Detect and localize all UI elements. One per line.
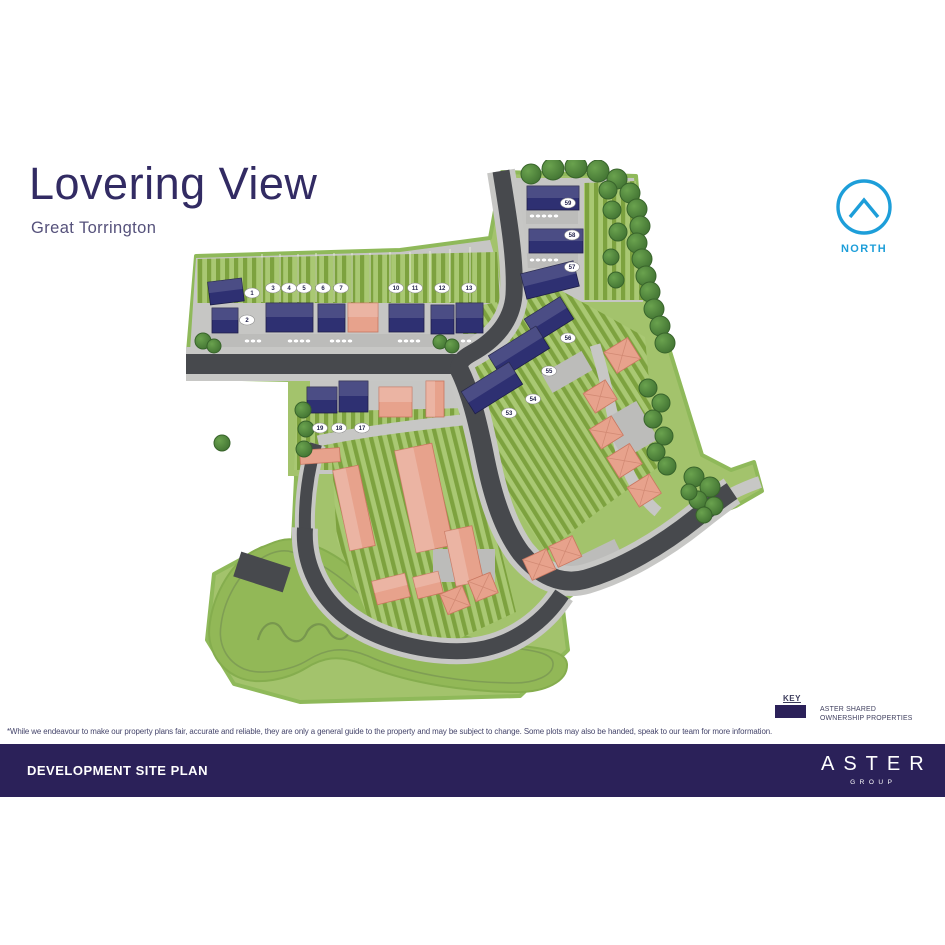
svg-text:13: 13 xyxy=(466,286,473,292)
plot-badge: 59 xyxy=(561,198,576,208)
plot-badge: 17 xyxy=(355,423,370,433)
footer-title: DEVELOPMENT SITE PLAN xyxy=(27,744,208,797)
open-market-house xyxy=(348,303,378,332)
north-label: NORTH xyxy=(828,243,900,255)
map-key: KEY ASTER SHARED OWNERSHIP PROPERTIES xyxy=(775,694,809,718)
plot-badge: 10 xyxy=(389,283,404,293)
key-heading: KEY xyxy=(775,694,809,703)
svg-text:18: 18 xyxy=(336,426,343,432)
plot-badge: 56 xyxy=(561,333,576,343)
svg-text:53: 53 xyxy=(506,411,513,417)
key-label-line1: ASTER SHARED xyxy=(820,706,913,715)
svg-text:19: 19 xyxy=(317,426,324,432)
brand-subtitle: GROUP xyxy=(821,779,926,786)
shared-ownership-house xyxy=(208,278,245,305)
key-label: ASTER SHARED OWNERSHIP PROPERTIES xyxy=(820,706,913,723)
disclaimer-text: *While we endeavour to make our property… xyxy=(7,727,937,736)
plot-badge: 4 xyxy=(282,283,297,293)
svg-text:55: 55 xyxy=(546,369,553,375)
shared-ownership-house xyxy=(339,381,368,412)
key-swatch-shared-ownership xyxy=(775,705,806,718)
plot-badge: 18 xyxy=(332,423,347,433)
svg-text:59: 59 xyxy=(565,201,572,207)
plot-badge: 12 xyxy=(435,283,450,293)
open-market-house xyxy=(379,387,412,417)
shared-ownership-house xyxy=(307,387,337,413)
plot-badge: 5 xyxy=(297,283,312,293)
svg-text:58: 58 xyxy=(569,233,576,239)
svg-text:10: 10 xyxy=(393,286,400,292)
page-subtitle: Great Torrington xyxy=(31,219,156,238)
plot-badge: 53 xyxy=(502,408,517,418)
brand-name: ASTER xyxy=(821,753,930,776)
plot-badge: 58 xyxy=(565,230,580,240)
svg-text:12: 12 xyxy=(439,286,446,292)
page: Lovering View Great Torrington NORTH xyxy=(0,0,945,945)
shared-ownership-house xyxy=(389,304,424,332)
svg-text:57: 57 xyxy=(569,265,576,271)
plot-badge: 19 xyxy=(313,423,328,433)
plot-badge: 2 xyxy=(240,315,255,325)
plot-badge: 55 xyxy=(542,366,557,376)
plot-badge: 7 xyxy=(334,283,349,293)
plot-badge: 57 xyxy=(565,262,580,272)
plot-badge: 3 xyxy=(266,283,281,293)
key-label-line2: OWNERSHIP PROPERTIES xyxy=(820,715,913,724)
north-indicator: NORTH xyxy=(828,176,900,255)
plot-badge: 1 xyxy=(245,288,260,298)
shared-ownership-house xyxy=(212,308,238,333)
shared-ownership-house xyxy=(318,304,345,332)
svg-text:17: 17 xyxy=(359,426,366,432)
aster-group-logo: ASTER GROUP xyxy=(821,753,921,786)
site-plan-map: 12345671011121317181953545556575859 xyxy=(185,160,765,716)
plot-badge: 13 xyxy=(462,283,477,293)
svg-text:54: 54 xyxy=(530,397,537,403)
footer-bar: DEVELOPMENT SITE PLAN ASTER GROUP xyxy=(0,744,945,797)
open-market-house xyxy=(426,381,444,417)
shared-ownership-house xyxy=(456,303,483,333)
plot-badge: 11 xyxy=(408,283,423,293)
shared-ownership-house xyxy=(266,303,313,332)
svg-text:11: 11 xyxy=(412,286,419,292)
shared-ownership-house xyxy=(431,305,454,334)
plot-badge: 54 xyxy=(526,394,541,404)
north-arrow-icon xyxy=(828,176,900,236)
plot-badge: 6 xyxy=(316,283,331,293)
svg-text:56: 56 xyxy=(565,336,572,342)
